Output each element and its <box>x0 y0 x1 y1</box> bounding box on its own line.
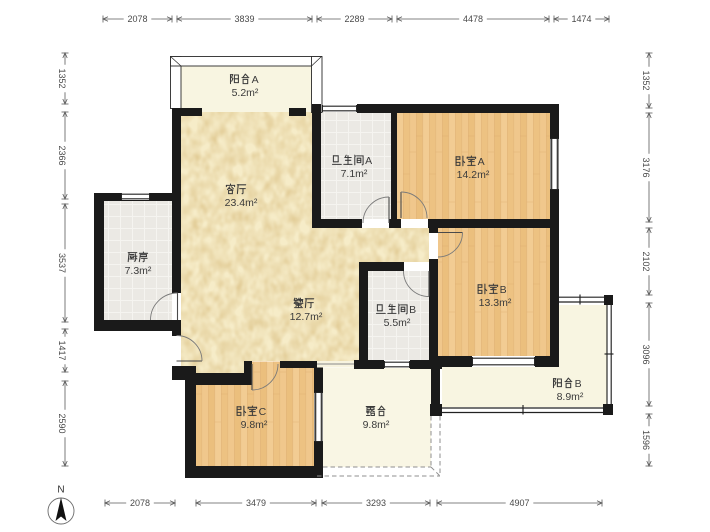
svg-text:B: B <box>575 378 582 390</box>
svg-text:14.2m²: 14.2m² <box>457 169 490 181</box>
svg-text:5.5m²: 5.5m² <box>384 317 411 329</box>
svg-text:1474: 1474 <box>571 14 591 24</box>
svg-text:2078: 2078 <box>127 14 147 24</box>
svg-text:3096: 3096 <box>641 344 651 364</box>
svg-text:5.2m²: 5.2m² <box>232 87 259 99</box>
svg-text:12.7m²: 12.7m² <box>290 311 323 323</box>
svg-text:23.4m²: 23.4m² <box>225 197 258 209</box>
svg-text:2102: 2102 <box>641 251 651 271</box>
svg-text:3479: 3479 <box>246 498 266 508</box>
svg-text:2078: 2078 <box>130 498 150 508</box>
svg-text:2366: 2366 <box>57 145 67 165</box>
svg-text:1352: 1352 <box>57 68 67 88</box>
svg-text:4478: 4478 <box>463 14 483 24</box>
svg-text:2590: 2590 <box>57 413 67 433</box>
svg-text:3176: 3176 <box>641 157 651 177</box>
svg-text:1596: 1596 <box>641 430 651 450</box>
svg-text:A: A <box>252 74 259 86</box>
svg-text:1352: 1352 <box>641 70 651 90</box>
svg-text:N: N <box>57 485 64 496</box>
svg-text:7.3m²: 7.3m² <box>125 265 152 277</box>
svg-text:B: B <box>409 304 416 316</box>
svg-text:B: B <box>500 284 507 296</box>
svg-text:9.8m²: 9.8m² <box>363 419 390 431</box>
svg-text:3839: 3839 <box>234 14 254 24</box>
svg-text:9.8m²: 9.8m² <box>241 419 268 431</box>
svg-text:3537: 3537 <box>57 253 67 273</box>
svg-text:7.1m²: 7.1m² <box>341 168 368 180</box>
svg-text:A: A <box>478 156 485 168</box>
svg-text:A: A <box>365 155 372 167</box>
svg-text:2289: 2289 <box>344 14 364 24</box>
svg-text:3293: 3293 <box>366 498 386 508</box>
svg-text:1417: 1417 <box>57 340 67 360</box>
svg-text:C: C <box>259 406 267 418</box>
svg-text:4907: 4907 <box>509 498 529 508</box>
svg-text:8.9m²: 8.9m² <box>557 391 584 403</box>
svg-text:13.3m²: 13.3m² <box>479 297 512 309</box>
